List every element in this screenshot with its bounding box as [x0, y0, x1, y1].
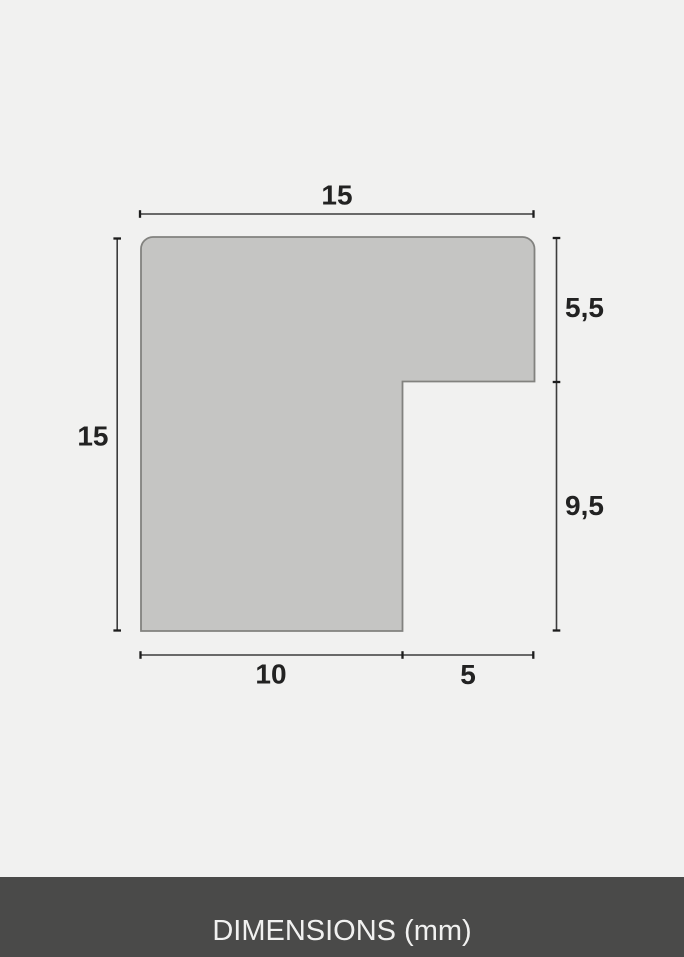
- svg-text:15: 15: [321, 180, 352, 211]
- svg-text:10: 10: [255, 659, 286, 690]
- svg-text:5: 5: [460, 659, 476, 690]
- svg-text:9,5: 9,5: [565, 490, 604, 521]
- svg-text:5,5: 5,5: [565, 292, 604, 323]
- svg-text:15: 15: [77, 421, 108, 452]
